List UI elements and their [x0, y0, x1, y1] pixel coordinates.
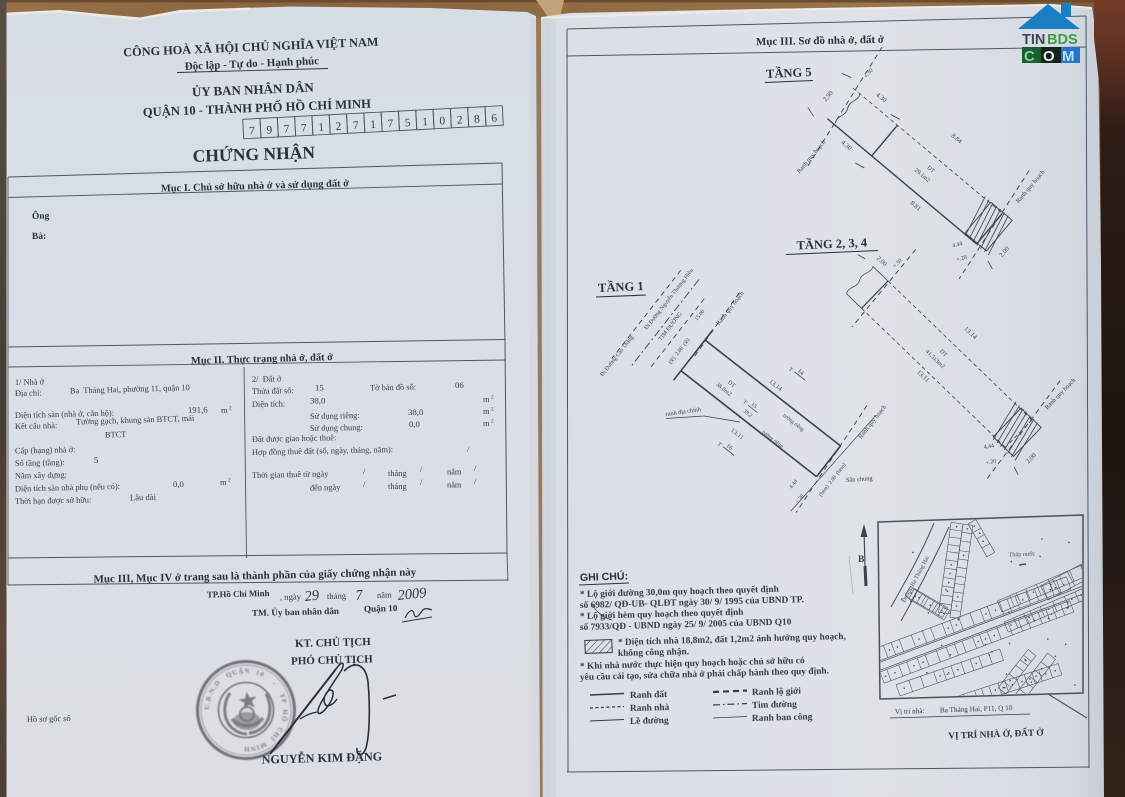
svg-text:2: 2 — [228, 478, 231, 484]
svg-text:Vị trí nhà:: Vị trí nhà: — [895, 707, 925, 716]
svg-text:không công nhận.: không công nhận. — [618, 647, 689, 659]
svg-text:6: 6 — [491, 112, 498, 124]
svg-text:tháng: tháng — [388, 469, 407, 478]
svg-text:2: 2 — [335, 121, 342, 133]
svg-text:38,0: 38,0 — [408, 407, 424, 417]
svg-text:Kết cấu nhà:: Kết cấu nhà: — [15, 421, 58, 431]
svg-text:Ranh ban công: Ranh ban công — [752, 712, 813, 724]
svg-text:9: 9 — [266, 124, 273, 136]
svg-text:tháng: tháng — [327, 591, 347, 601]
svg-text:8: 8 — [474, 113, 481, 125]
svg-text:Tháp nước: Tháp nước — [1008, 551, 1035, 559]
svg-text:1/ Nhà ở: 1/ Nhà ở — [15, 377, 45, 387]
svg-text:2: 2 — [456, 114, 463, 126]
svg-text:năm: năm — [377, 590, 392, 600]
svg-text:Thửa đất số:: Thửa đất số: — [252, 386, 294, 396]
svg-text:2: 2 — [491, 419, 494, 425]
svg-text:BTCT: BTCT — [105, 430, 127, 439]
svg-text:Quận 10: Quận 10 — [364, 603, 398, 614]
svg-text:B: B — [858, 555, 865, 565]
svg-text:5: 5 — [94, 455, 99, 465]
svg-text:Diện tích:: Diện tích: — [252, 399, 285, 409]
svg-text:38,0: 38,0 — [310, 396, 326, 406]
svg-text:0,0: 0,0 — [173, 479, 185, 489]
svg-text:Tim đường: Tim đường — [752, 700, 797, 711]
svg-text:Năm xây dựng:: Năm xây dựng: — [15, 470, 67, 480]
svg-text:tháng: tháng — [388, 482, 407, 491]
svg-text:Sử dụng riêng:: Sử dụng riêng: — [310, 411, 360, 421]
svg-text:7: 7 — [283, 123, 290, 135]
svg-text:TIN: TIN — [1022, 32, 1045, 48]
svg-text:, ngày: , ngày — [280, 591, 302, 602]
svg-text:2: 2 — [491, 395, 494, 401]
svg-text:TẦNG 5: TẦNG 5 — [766, 64, 812, 81]
svg-text:1: 1 — [370, 119, 377, 131]
svg-text:m: m — [483, 395, 490, 404]
svg-text:O: O — [1043, 48, 1055, 65]
svg-text:0: 0 — [439, 115, 446, 127]
svg-text:KT. CHỦ TỊCH: KT. CHỦ TỊCH — [295, 636, 371, 650]
svg-text:7: 7 — [301, 122, 308, 134]
svg-text:C: C — [1024, 48, 1035, 65]
svg-text:Cấp (hạng) nhà ở:: Cấp (hạng) nhà ở: — [15, 445, 76, 455]
svg-text:TM. Ủy ban nhân dân: TM. Ủy ban nhân dân — [252, 606, 339, 618]
svg-text:Ranh lộ giới: Ranh lộ giới — [752, 687, 802, 698]
svg-text:GHI CHÚ:: GHI CHÚ: — [580, 569, 629, 584]
svg-text:2: 2 — [229, 406, 232, 412]
svg-text:Đất được giao hoặc thuê:: Đất được giao hoặc thuê: — [252, 433, 336, 444]
svg-text:Địa chỉ:: Địa chỉ: — [15, 388, 42, 398]
svg-text:Bà:: Bà: — [32, 232, 47, 242]
svg-text:TẦNG 1: TẦNG 1 — [598, 278, 644, 295]
svg-text:2/ Đất ở: 2/ Đất ở — [252, 374, 282, 384]
svg-text:1: 1 — [318, 122, 325, 134]
svg-text:BDS: BDS — [1047, 32, 1078, 48]
svg-text:2009: 2009 — [397, 585, 428, 604]
svg-text:Sử dụng chung:: Sử dụng chung: — [310, 423, 363, 433]
svg-text:Ranh nhà: Ranh nhà — [630, 703, 670, 714]
svg-text:Lâu dài: Lâu dài — [130, 492, 157, 503]
svg-text:5: 5 — [405, 117, 412, 129]
svg-text:M: M — [1062, 48, 1075, 65]
svg-text:Lề đường: Lề đường — [630, 715, 669, 727]
svg-text:CHỨNG NHẬN: CHỨNG NHẬN — [192, 142, 315, 166]
svg-text:Ranh đất: Ranh đất — [630, 689, 668, 701]
svg-text:Hồ sơ gốc số: Hồ sơ gốc số — [27, 714, 72, 724]
svg-text:Thời hạn được sở hữu:: Thời hạn được sở hữu: — [15, 495, 91, 506]
svg-text:TẦNG 2, 3, 4: TẦNG 2, 3, 4 — [796, 234, 868, 252]
svg-text:TP.Hồ Chí Minh: TP.Hồ Chí Minh — [207, 588, 270, 600]
svg-text:năm: năm — [447, 468, 462, 477]
svg-text:Tờ bản đồ số:: Tờ bản đồ số: — [370, 383, 416, 393]
svg-text:0,0: 0,0 — [409, 419, 421, 429]
svg-text:2: 2 — [491, 407, 494, 413]
svg-text:7: 7 — [249, 125, 256, 137]
svg-text:06: 06 — [455, 380, 464, 390]
svg-text:7: 7 — [353, 120, 360, 132]
svg-text:Số tầng (tầng):: Số tầng (tầng): — [15, 458, 65, 468]
svg-text:15: 15 — [315, 383, 324, 393]
svg-text:Mục III. Sơ đồ nhà ở, đất ở: Mục III. Sơ đồ nhà ở, đất ở — [756, 34, 885, 48]
svg-text:m: m — [483, 407, 490, 416]
svg-text:29: 29 — [304, 587, 321, 605]
svg-text:đến ngày: đến ngày — [310, 483, 341, 493]
svg-text:m: m — [220, 478, 227, 487]
svg-text:năm: năm — [447, 481, 462, 490]
svg-text:PHÓ CHỦ TỊCH: PHÓ CHỦ TỊCH — [291, 653, 373, 667]
svg-text:Thời gian thuê từ ngày: Thời gian thuê từ ngày — [252, 469, 329, 480]
svg-text:7: 7 — [387, 118, 394, 130]
svg-text:1: 1 — [422, 116, 429, 128]
svg-text:m: m — [483, 419, 490, 428]
svg-text:m: m — [221, 406, 228, 415]
